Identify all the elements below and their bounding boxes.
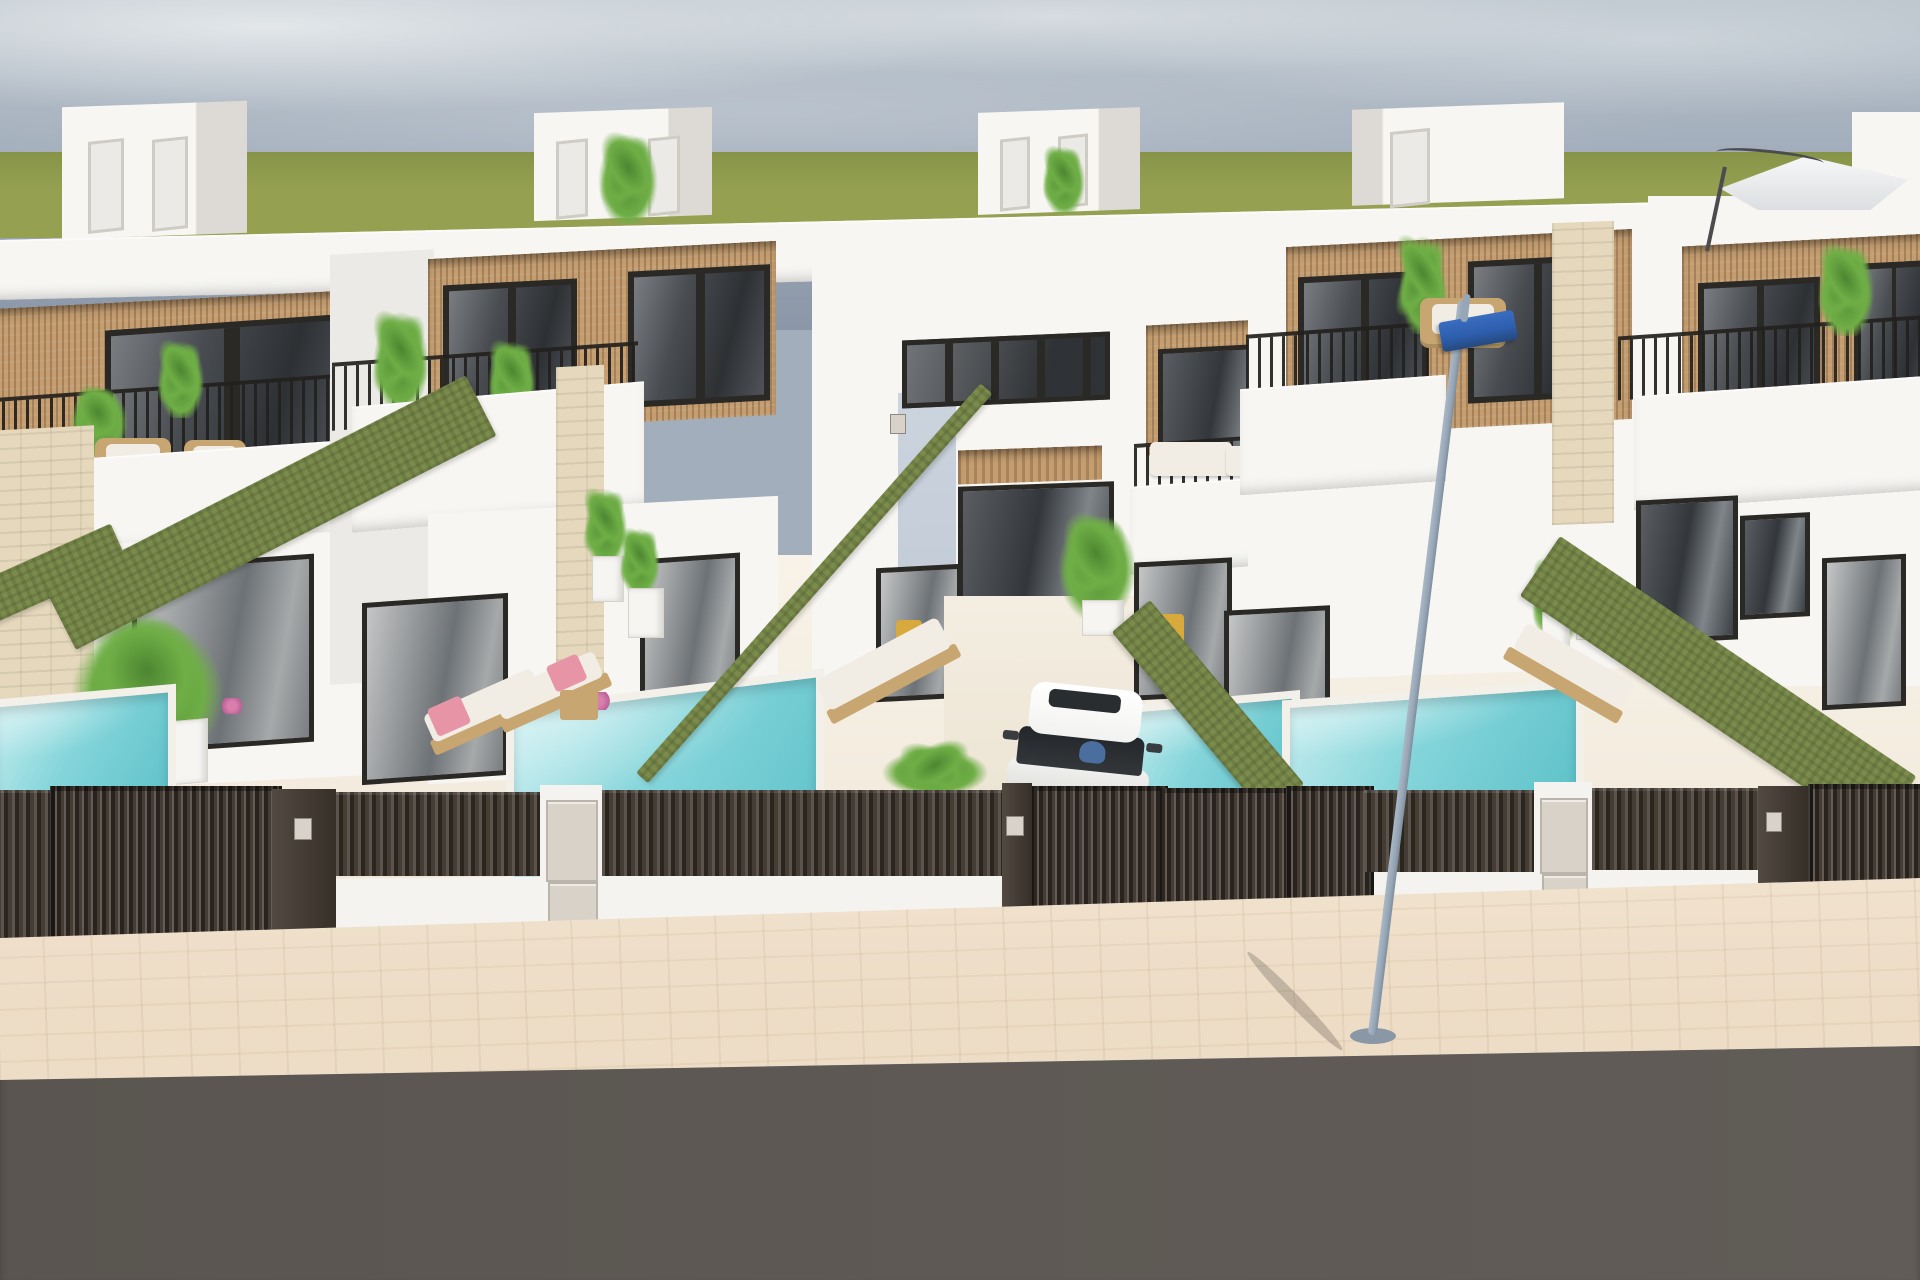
roof-plant-house2 — [586, 112, 670, 224]
window-house2-b — [628, 264, 770, 407]
glass-door-house5 — [1822, 554, 1906, 710]
terrace-sofa-house3-a — [1150, 442, 1232, 476]
car-mirror-left — [1002, 730, 1019, 741]
terrace-plant-house5 — [1806, 222, 1886, 336]
fence-yard2-left — [336, 792, 542, 876]
planter-house2-b — [628, 588, 664, 638]
roof-door-house1-b — [152, 136, 188, 232]
stone-pillar-house4 — [1552, 221, 1614, 525]
yard-plant-house2-b — [612, 512, 668, 596]
pink-flowers-a — [220, 698, 244, 714]
car-mirror-right — [1146, 743, 1163, 754]
fence-yard4-right — [1592, 788, 1758, 870]
intercom-house3 — [890, 414, 906, 434]
terrace-plant-house1-b — [148, 322, 214, 418]
fence-plants — [860, 738, 1010, 794]
terrace-plant-house2-a — [362, 288, 440, 410]
fence-yard2-right — [602, 790, 1002, 876]
glass-house5-b — [1740, 512, 1810, 620]
side-table-yard2 — [560, 690, 598, 720]
scene — [0, 0, 1920, 1280]
gate-lock-house1 — [294, 818, 312, 840]
terrace-parapet-house4 — [1240, 375, 1446, 495]
window-strip-house3 — [902, 331, 1110, 408]
roof-plant-house3 — [1034, 130, 1094, 214]
roof-door-house4 — [1390, 128, 1430, 208]
roof-door-house1-a — [88, 138, 124, 234]
meter-box-1a — [546, 800, 598, 882]
terrace-parapet-house5 — [1634, 376, 1920, 511]
yard-plant-house3 — [1042, 490, 1152, 618]
fence-far-left — [0, 790, 56, 950]
wood-lintel-house3 — [958, 445, 1102, 484]
gate-lock-house5 — [1766, 812, 1782, 832]
roof-box-house4 — [1352, 102, 1564, 205]
gate-lock-center — [1006, 816, 1024, 836]
meter-box-2a — [1540, 798, 1588, 874]
gate-pillar-house1 — [272, 789, 336, 950]
